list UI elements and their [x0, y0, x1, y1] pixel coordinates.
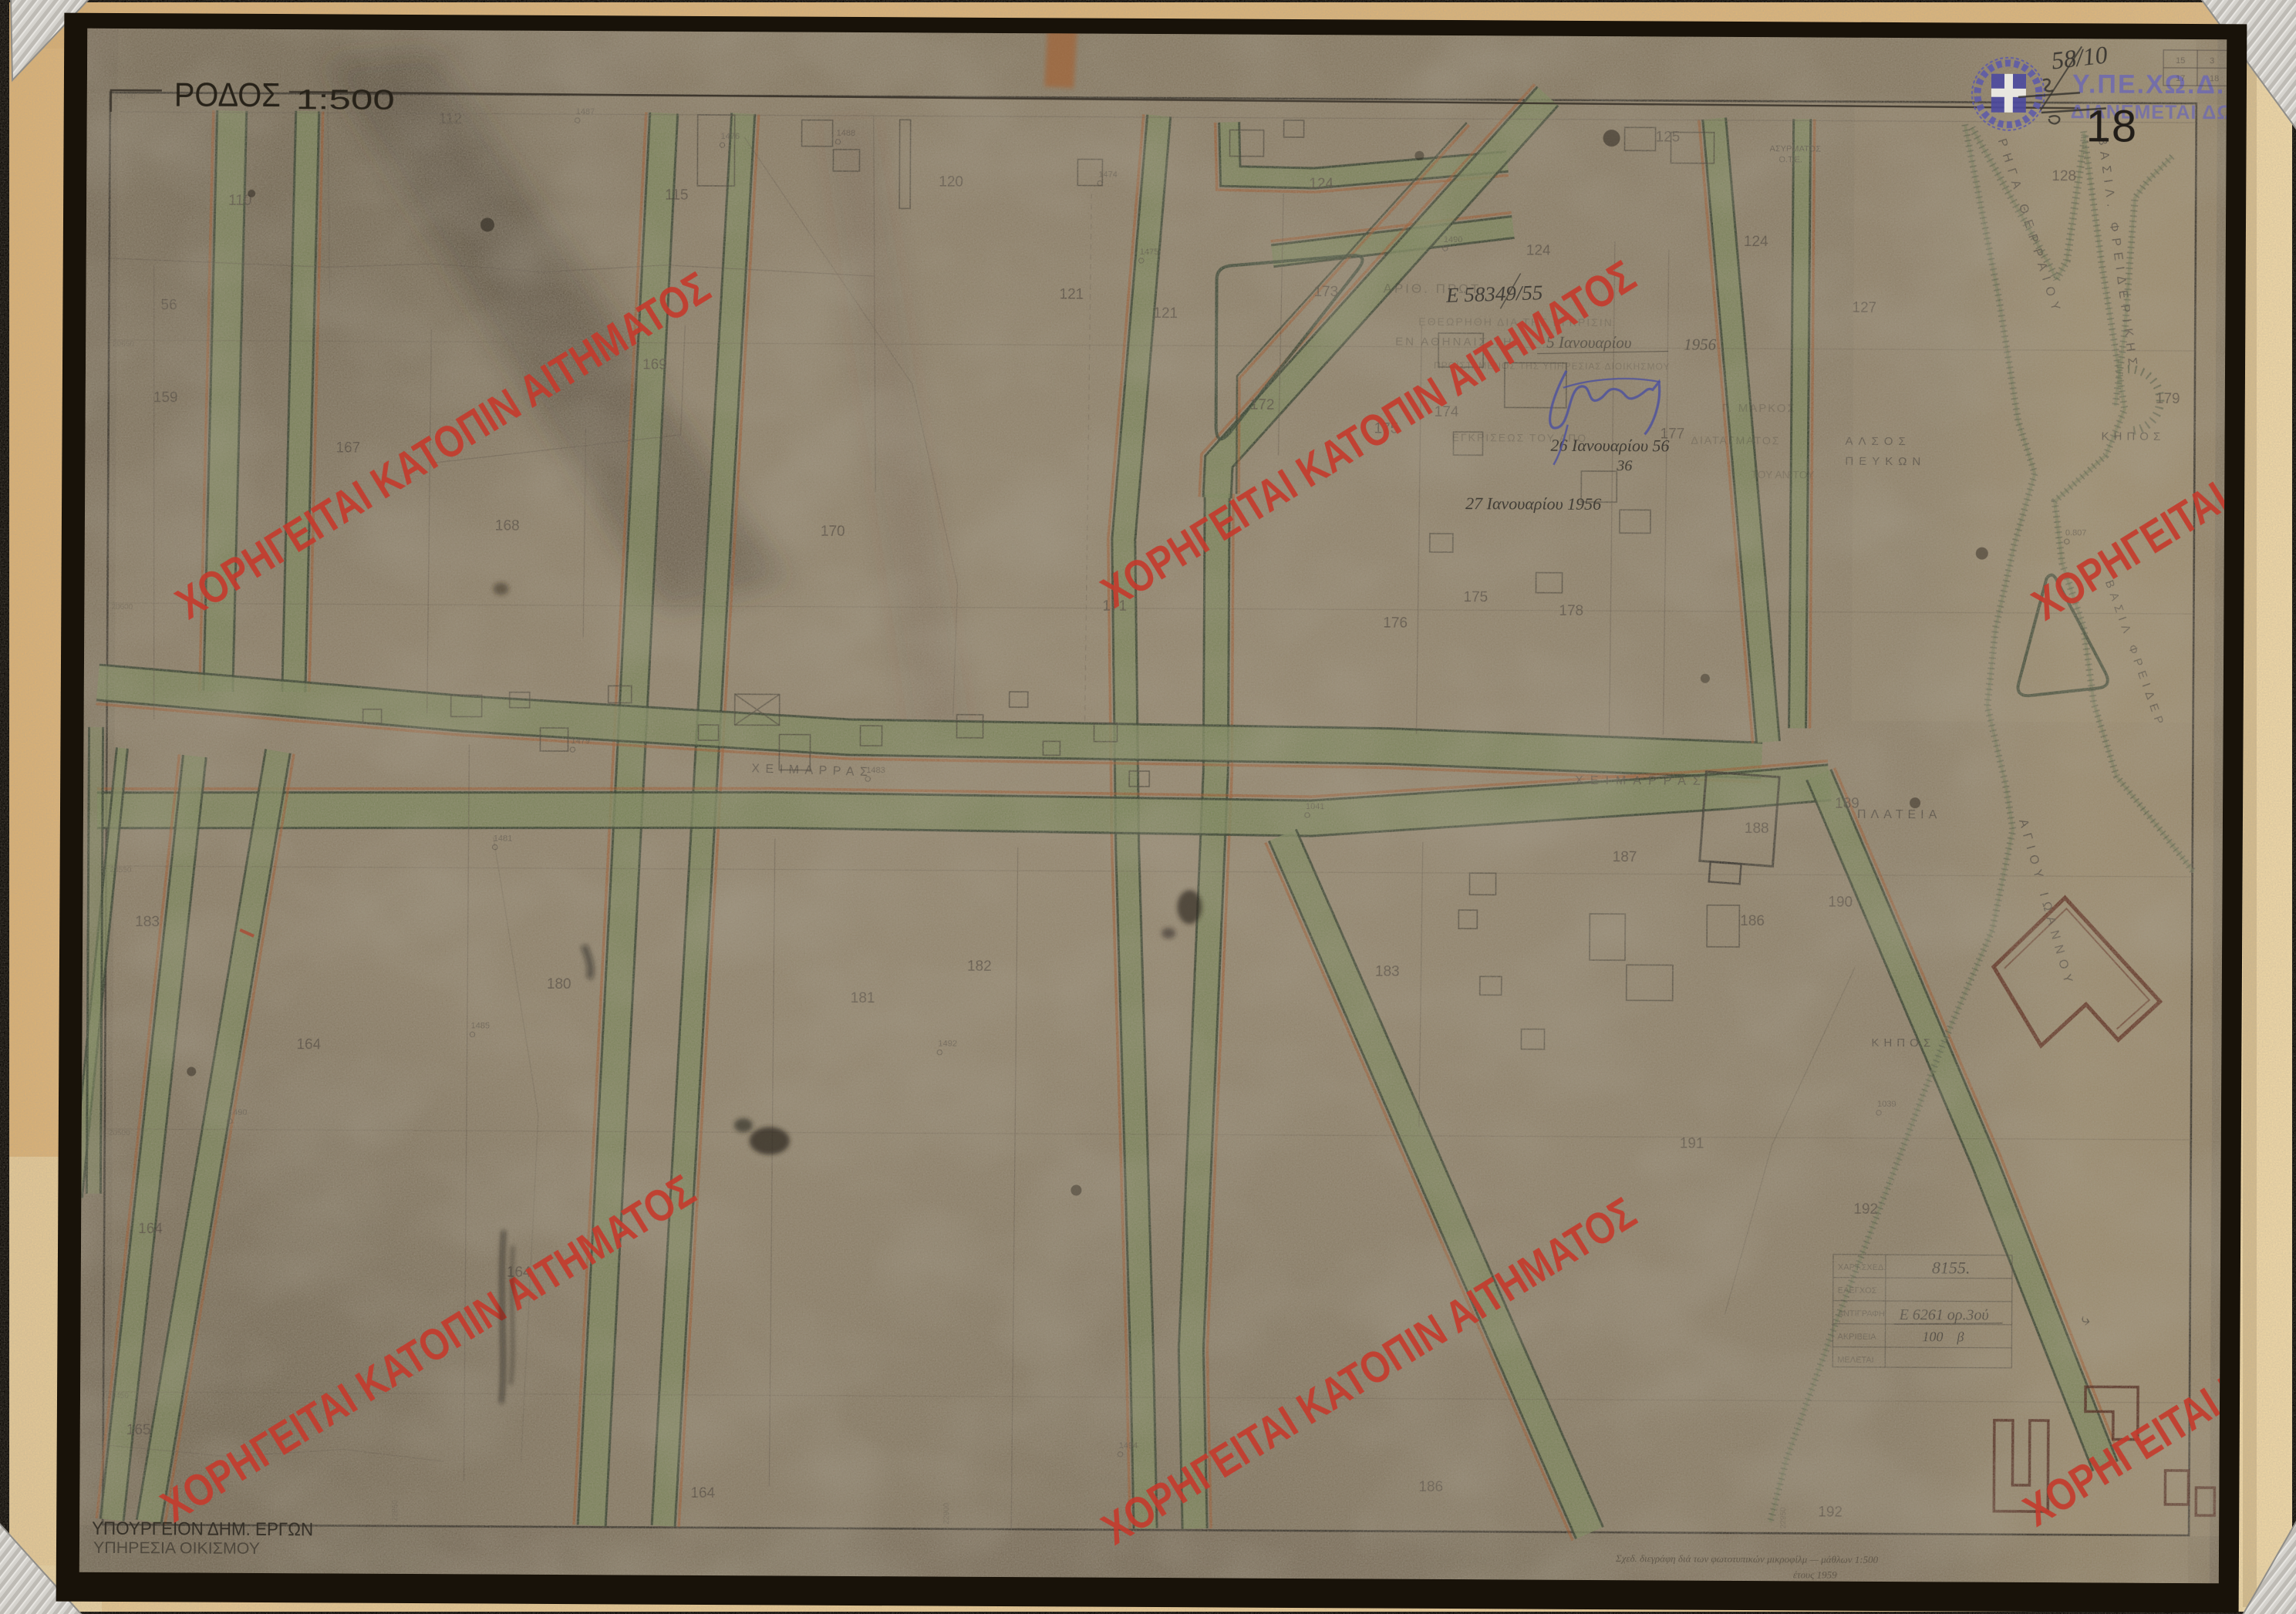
svg-text:18: 18: [2210, 74, 2219, 83]
svg-text:ΥΠΟΥΡΓΕΙΟΝ ΔΗΜ. ΕΡΓΩΝ: ΥΠΟΥΡΓΕΙΟΝ ΔΗΜ. ΕΡΓΩΝ: [92, 1518, 313, 1541]
svg-text:18: 18: [2086, 101, 2138, 151]
svg-text:έτους 1959: έτους 1959: [1793, 1569, 1837, 1580]
svg-text:27 Ιανουαρίου 1956: 27 Ιανουαρίου 1956: [1465, 494, 1601, 514]
svg-text:ΡΟΔΟΣ: ΡΟΔΟΣ: [174, 76, 281, 114]
svg-text:Γ. ΜΑΡΚΟΣ: Γ. ΜΑΡΚΟΣ: [1722, 402, 1796, 416]
svg-text:ΤΟΥ ΑΝ ΤΟΥ: ΤΟΥ ΑΝ ΤΟΥ: [1751, 468, 1815, 480]
svg-text:26 Ιανουαρίου 56: 26 Ιανουαρίου 56: [1550, 436, 1669, 456]
svg-text:36: 36: [1616, 457, 1632, 474]
svg-text:3: 3: [2210, 56, 2214, 66]
svg-text:Σχεδ. διεγράφη διά των φωτοτυπ: Σχεδ. διεγράφη διά των φωτοτυπικών μικρο…: [1615, 1552, 1879, 1565]
svg-text:1956: 1956: [1684, 335, 1717, 354]
svg-text:15: 15: [2176, 56, 2185, 66]
svg-text:1:500: 1:500: [296, 83, 395, 116]
svg-text:ΥΠΗΡΕΣΙΑ ΟΙΚΙΣΜΟΥ: ΥΠΗΡΕΣΙΑ ΟΙΚΙΣΜΟΥ: [93, 1539, 260, 1558]
svg-text:ΑΡΙΘ. ΠΡΩΤ.: ΑΡΙΘ. ΠΡΩΤ.: [1384, 281, 1486, 297]
svg-text:Υ.ΠΕ.ΧΩ.Δ.Ε.: Υ.ΠΕ.ΧΩ.Δ.Ε.: [2072, 69, 2254, 99]
svg-text:17: 17: [2176, 74, 2185, 83]
svg-text:ΔΙΑΤΑΓΜΑΤΟΣ: ΔΙΑΤΑΓΜΑΤΟΣ: [1691, 434, 1780, 447]
